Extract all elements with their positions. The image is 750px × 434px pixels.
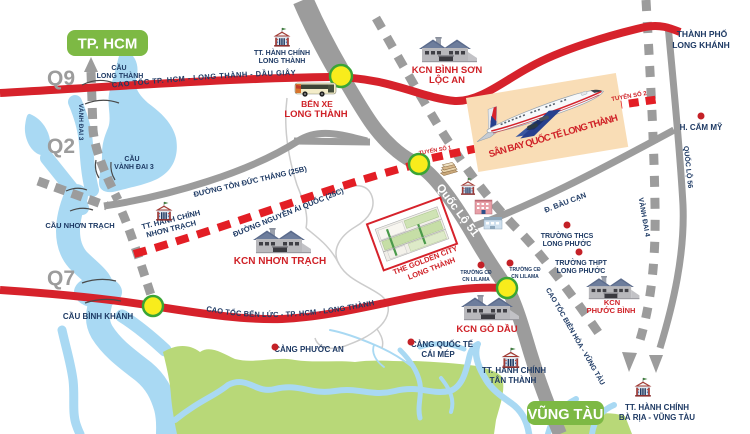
svg-text:TÂN THÀNH: TÂN THÀNH (490, 376, 537, 385)
svg-text:Q2: Q2 (47, 135, 75, 158)
svg-text:KCN NHƠN TRẠCH: KCN NHƠN TRẠCH (234, 256, 326, 267)
svg-text:LỘC AN: LỘC AN (429, 74, 465, 86)
svg-text:H. CẨM MỸ: H. CẨM MỸ (680, 123, 723, 132)
svg-text:Q7: Q7 (47, 267, 75, 290)
svg-text:CẦU BÌNH KHÁNH: CẦU BÌNH KHÁNH (63, 311, 133, 321)
svg-text:CẢNG PHƯỚC AN: CẢNG PHƯỚC AN (274, 345, 344, 354)
svg-text:THÀNH PHỐ: THÀNH PHỐ (677, 28, 728, 39)
svg-text:VÀNH ĐAI 3: VÀNH ĐAI 3 (114, 162, 154, 171)
svg-text:TRƯỜNG THPT: TRƯỜNG THPT (555, 258, 608, 267)
svg-text:LONG THÀNH: LONG THÀNH (284, 109, 347, 120)
svg-text:TRƯỜNG THCS: TRƯỜNG THCS (541, 231, 594, 240)
svg-text:CÁI MÉP: CÁI MÉP (421, 350, 455, 359)
svg-text:LONG PHƯỚC: LONG PHƯỚC (557, 266, 606, 275)
svg-text:PHƯỚC BÌNH: PHƯỚC BÌNH (587, 306, 636, 315)
svg-text:TT. HÀNH CHÍNH: TT. HÀNH CHÍNH (625, 403, 689, 412)
svg-text:LONG THÀNH: LONG THÀNH (97, 71, 144, 80)
svg-text:CẢNG QUỐC TẾ: CẢNG QUỐC TẾ (411, 339, 474, 349)
svg-text:VŨNG TÀU: VŨNG TÀU (528, 405, 604, 423)
svg-text:Q9: Q9 (47, 67, 75, 90)
svg-text:TRƯỜNG CĐ: TRƯỜNG CĐ (460, 268, 492, 276)
svg-text:TP. HCM: TP. HCM (78, 36, 138, 53)
svg-text:TRƯỜNG CĐ: TRƯỜNG CĐ (509, 265, 541, 273)
svg-text:VÀNH ĐAI 3: VÀNH ĐAI 3 (77, 104, 86, 141)
svg-text:BÀ RỊA - VŨNG TÀU: BÀ RỊA - VŨNG TÀU (619, 413, 695, 422)
svg-text:CN LILAMA: CN LILAMA (462, 277, 490, 283)
svg-text:CN LILAMA: CN LILAMA (511, 274, 539, 280)
svg-text:KCN GÒ DẦU: KCN GÒ DẦU (456, 323, 517, 335)
svg-text:CẦU NHƠN TRẠCH: CẦU NHƠN TRẠCH (45, 220, 114, 230)
svg-text:TT. HÀNH CHÍNH: TT. HÀNH CHÍNH (254, 48, 310, 57)
svg-text:LONG THÀNH: LONG THÀNH (259, 56, 306, 65)
svg-text:BẾN XE: BẾN XE (301, 99, 333, 109)
svg-text:LONG KHÁNH: LONG KHÁNH (672, 40, 730, 50)
svg-text:LONG PHƯỚC: LONG PHƯỚC (543, 239, 592, 248)
